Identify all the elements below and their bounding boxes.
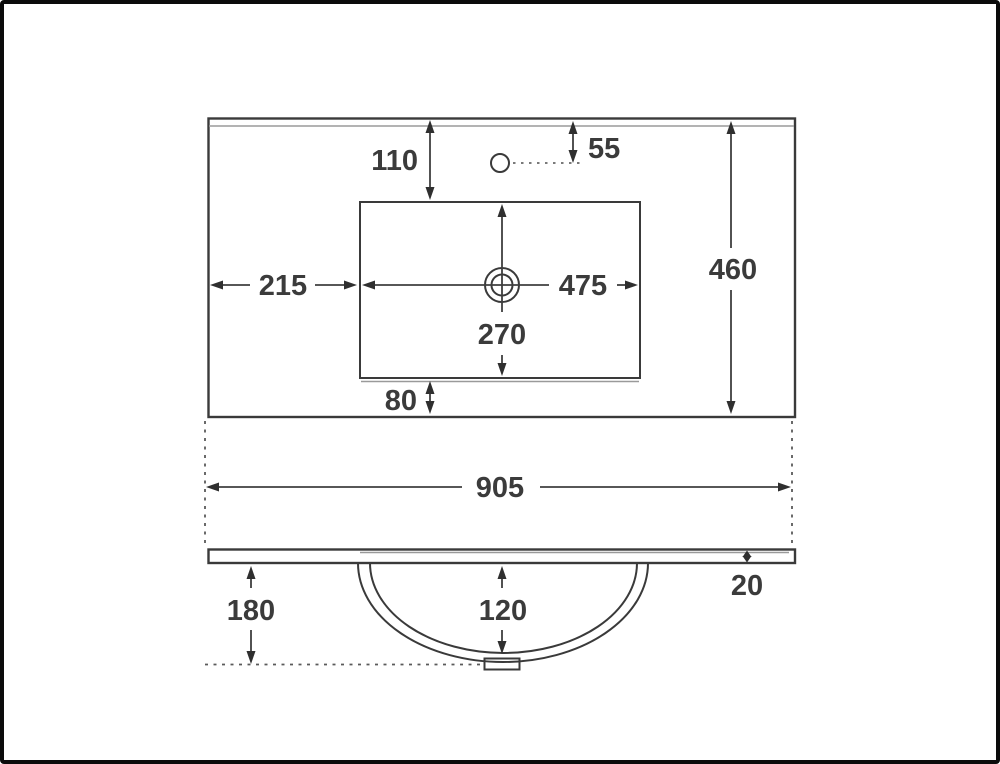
- arrowhead-down-icon: [498, 363, 507, 376]
- arrowhead-up-icon: [569, 121, 578, 134]
- front-elevation: 20 180 120: [205, 550, 795, 670]
- dim-label-20: 20: [731, 570, 763, 602]
- dim-label-475: 475: [559, 270, 607, 302]
- arrowhead-down-icon: [426, 401, 435, 414]
- arrowhead-left-icon: [362, 281, 375, 290]
- dim-bowl-depth: 120: [479, 566, 527, 654]
- dim-cutout-depth: 270: [472, 204, 532, 376]
- dim-cutout-from-back: 110: [371, 120, 434, 200]
- arrowhead-down-icon: [569, 150, 578, 163]
- dim-label-460: 460: [709, 254, 757, 286]
- arrowhead-down-icon: [743, 556, 752, 563]
- arrowhead-right-icon: [625, 281, 638, 290]
- dim-label-905: 905: [476, 472, 524, 504]
- dim-label-80: 80: [385, 385, 417, 417]
- arrowhead-up-icon: [498, 204, 507, 217]
- plan-view: 110 55 215: [209, 119, 796, 418]
- arrowhead-right-icon: [778, 483, 791, 492]
- waste-outlet: [485, 659, 520, 670]
- arrowhead-right-icon: [344, 281, 357, 290]
- dim-label-270: 270: [478, 319, 526, 351]
- dim-label-55: 55: [588, 133, 620, 165]
- dim-top-thickness: 20: [731, 551, 763, 603]
- dim-underside-height: 180: [227, 566, 275, 664]
- dim-cutout-from-front: 80: [385, 381, 435, 417]
- arrowhead-up-icon: [498, 566, 507, 579]
- arrowhead-down-icon: [426, 187, 435, 200]
- tap-hole: [491, 154, 509, 172]
- arrowhead-up-icon: [727, 121, 736, 134]
- arrowhead-up-icon: [247, 566, 256, 579]
- arrowhead-left-icon: [210, 281, 223, 290]
- arrowhead-left-icon: [206, 483, 219, 492]
- arrowhead-up-icon: [426, 381, 435, 394]
- dim-label-215: 215: [259, 270, 307, 302]
- dim-label-180: 180: [227, 595, 275, 627]
- dim-overall-depth: 460: [709, 121, 757, 414]
- drawing-canvas: 110 55 215: [0, 0, 1000, 764]
- dim-tap-hole-from-back: 55: [569, 121, 621, 165]
- dim-cutout-from-left: 215: [210, 270, 357, 302]
- dim-label-120: 120: [479, 595, 527, 627]
- arrowhead-down-icon: [247, 651, 256, 664]
- top-slab-outline: [209, 550, 796, 564]
- technical-drawing: 110 55 215: [4, 4, 996, 760]
- dim-overall-width: 905: [205, 421, 792, 546]
- arrowhead-down-icon: [727, 401, 736, 414]
- dim-label-110: 110: [371, 145, 418, 177]
